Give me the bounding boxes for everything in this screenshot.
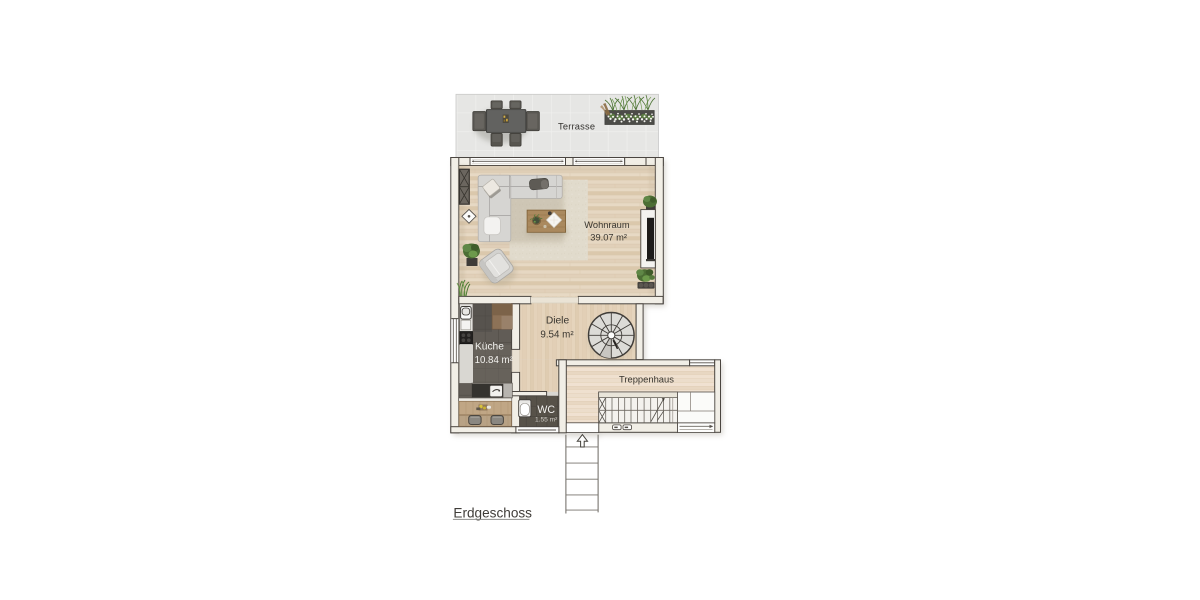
svg-text:9.54 m²: 9.54 m² xyxy=(540,329,574,340)
svg-text:WC: WC xyxy=(537,404,555,416)
svg-text:Terrasse: Terrasse xyxy=(558,122,595,132)
svg-text:Diele: Diele xyxy=(546,315,570,326)
svg-text:10.84 m²: 10.84 m² xyxy=(475,355,514,366)
svg-text:Küche: Küche xyxy=(475,342,504,353)
svg-text:Wohnraum: Wohnraum xyxy=(584,220,630,230)
svg-text:Treppenhaus: Treppenhaus xyxy=(619,373,674,384)
svg-text:39.07 m²: 39.07 m² xyxy=(590,233,627,243)
svg-text:Erdgeschoss: Erdgeschoss xyxy=(453,506,532,521)
svg-text:1.55 m²: 1.55 m² xyxy=(535,416,558,423)
